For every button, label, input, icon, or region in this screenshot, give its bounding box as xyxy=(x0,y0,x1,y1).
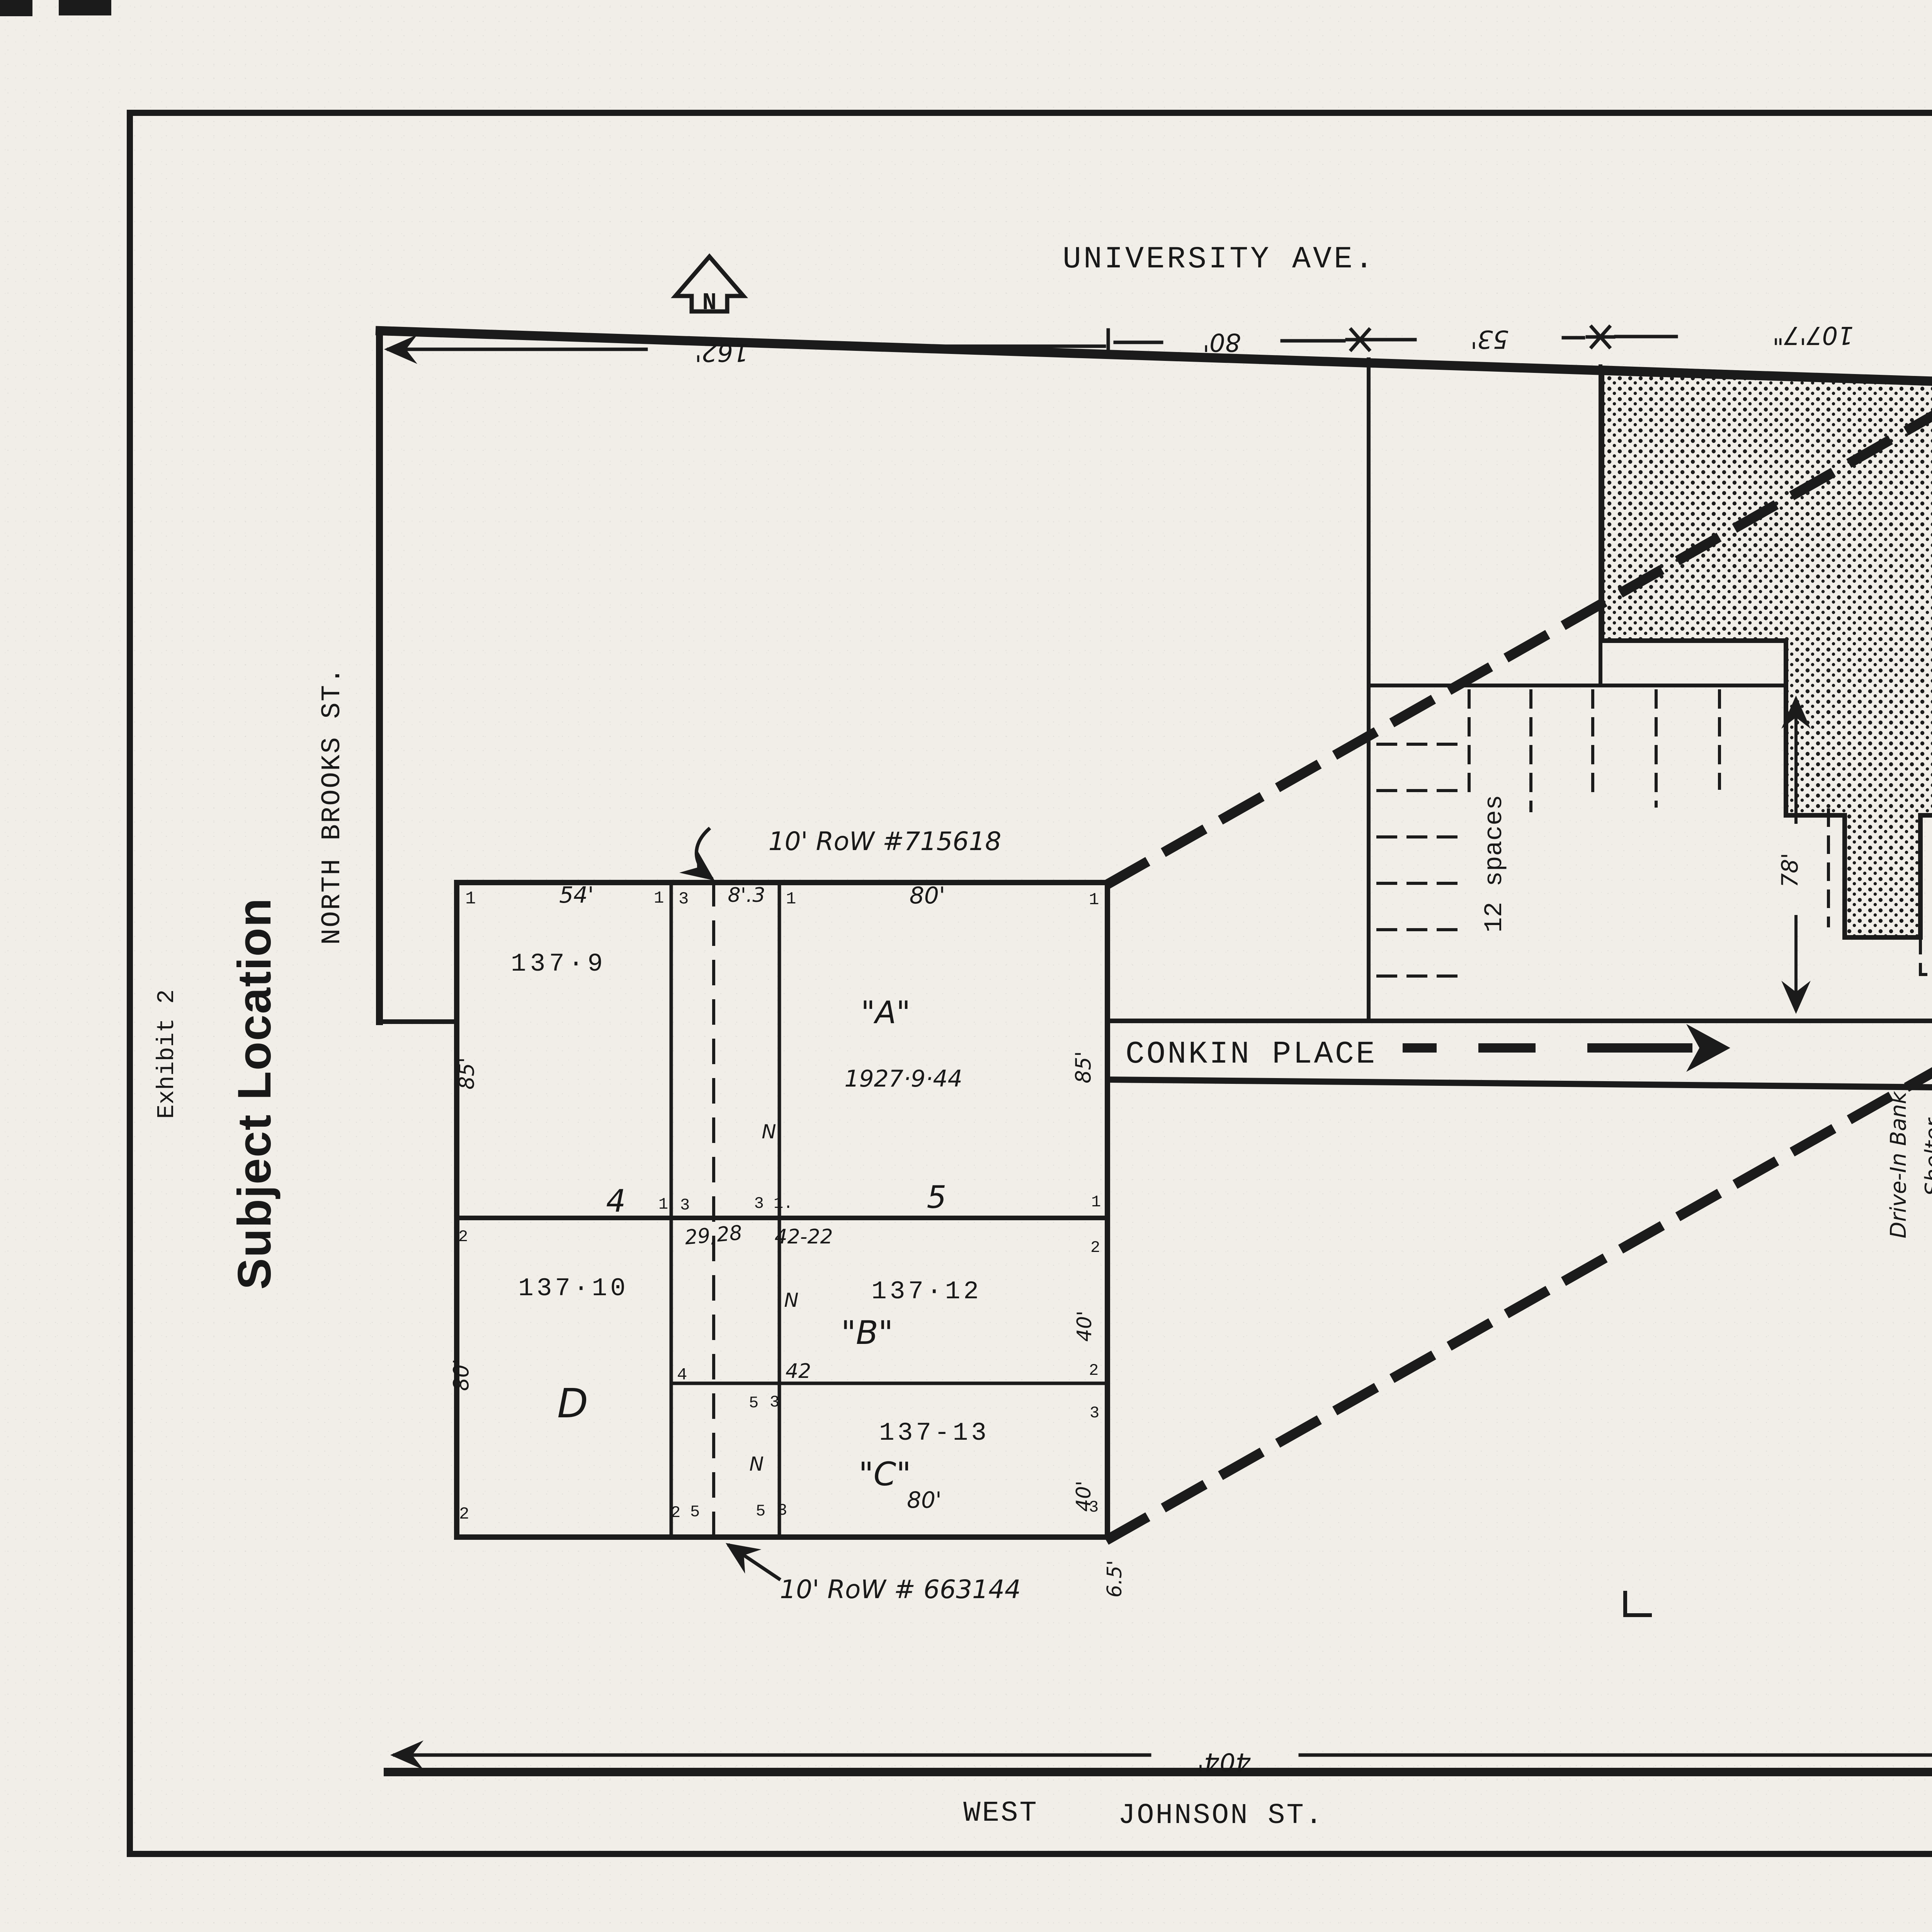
inset-dim-42-22: 42-22 xyxy=(774,1225,833,1248)
street-label-johnson-west: WEST xyxy=(963,1797,1038,1830)
corner-mark: 5 xyxy=(690,1503,700,1521)
parking-stall-lines-vertical xyxy=(1469,691,1719,811)
row-north-mark-1: N xyxy=(762,1121,776,1143)
inset-dim-85-right: 85' xyxy=(1071,1051,1095,1083)
lot-d-name: D xyxy=(557,1380,588,1427)
corner-mark: 3 xyxy=(680,1196,690,1214)
inset-dim-80-a: 80' xyxy=(910,882,946,909)
corner-mark: 1 xyxy=(786,889,796,909)
corner-mark: 1 xyxy=(465,889,476,909)
corner-mark: 2 xyxy=(1090,1238,1100,1257)
row-north-mark-2: N xyxy=(784,1289,798,1311)
block-4-number: 4 xyxy=(606,1183,626,1219)
inset-dim-29-28: 29,28 xyxy=(684,1221,743,1250)
inset-dim-40-b: 40' xyxy=(1073,1311,1096,1342)
inset-dim-54: 54' xyxy=(559,882,594,908)
north-arrow: N xyxy=(675,257,743,316)
row-note-upper: 10' RoW #715618 xyxy=(769,827,1002,856)
row-note-lower: 10' RoW # 663144 xyxy=(780,1575,1021,1604)
inset-dim-80-c: 80' xyxy=(907,1487,942,1513)
site-plan-drawing: Exhibit 2 Subject Location W S N UNIVERS… xyxy=(0,0,1932,1932)
corner-mark: 3 xyxy=(770,1393,779,1412)
lot-b-name: "B" xyxy=(841,1314,893,1352)
corner-mark: 2 xyxy=(671,1503,680,1522)
street-label-johnson: JOHNSON ST. xyxy=(1118,1799,1324,1832)
corner-mark: 5 xyxy=(756,1502,765,1520)
leader-dashed-lower xyxy=(1111,1024,1932,1538)
dim-univ-162: 162' xyxy=(695,338,749,366)
street-label-conkin: CONKIN PLACE xyxy=(1126,1036,1377,1072)
corner-mark: 5 xyxy=(749,1394,759,1412)
corner-mark: 1 xyxy=(1089,890,1099,910)
lot-c-name: "C" xyxy=(859,1455,911,1493)
corner-mark: 2 xyxy=(1089,1361,1099,1380)
inset-dim-80-d: 80' xyxy=(449,1359,473,1391)
lot-number-137-9: 137·9 xyxy=(511,949,607,978)
corner-mark: 2 xyxy=(458,1228,468,1246)
corner-mark: 2 xyxy=(459,1505,469,1524)
scan-marks-top xyxy=(0,5,1932,10)
scanned-page: { "page": { "exhibit": "Exhibit 2", "tit… xyxy=(0,0,1932,1932)
exhibit-label: Exhibit 2 xyxy=(153,990,180,1119)
dim-univ-80: 80' xyxy=(1202,328,1241,356)
street-label-university: UNIVERSITY AVE. xyxy=(1063,242,1376,277)
conkin-arrowhead xyxy=(1686,1024,1730,1072)
corner-mark: 1 xyxy=(658,1195,668,1214)
building-footprint xyxy=(1602,368,1932,937)
lot-number-137-12: 137·12 xyxy=(871,1277,982,1306)
corner-mark: 3 xyxy=(1089,1498,1099,1517)
lot-a-area: 1927·9·44 xyxy=(844,1065,962,1092)
dim-tick-star-2 xyxy=(1587,327,1614,347)
lot-number-137-13: 137-13 xyxy=(879,1418,990,1447)
dim-78-label: 78' xyxy=(1777,853,1803,888)
inset-dim-6-5: 6.5' xyxy=(1103,1560,1126,1598)
row-note-upper-leader xyxy=(696,829,711,878)
corner-mark: 3 xyxy=(679,889,689,909)
dim-univ-53: 53' xyxy=(1470,325,1509,353)
corner-mark: 3 xyxy=(1090,1404,1099,1422)
north-arrow-label: N xyxy=(702,289,716,316)
stray-mark xyxy=(1625,1593,1650,1615)
dim-tick-star-1 xyxy=(1347,330,1373,350)
inset-dim-42: 42 xyxy=(786,1360,811,1383)
parking-spaces-label: 12 spaces xyxy=(1480,795,1509,932)
row-note-lower-leader xyxy=(730,1546,779,1579)
corner-mark: 3 xyxy=(777,1501,787,1520)
inset-dim-85-left: 85' xyxy=(454,1057,479,1090)
lot-number-137-10: 137·10 xyxy=(518,1274,629,1303)
corner-mark: 4 xyxy=(677,1366,687,1385)
corner-mark: 1 xyxy=(654,889,664,908)
conkin-south-line xyxy=(1109,1080,1932,1088)
lot-a-name: "A" xyxy=(861,995,910,1031)
bank-shelter-label-2: Shelter xyxy=(1921,1117,1932,1196)
row-north-mark-3: N xyxy=(749,1453,764,1475)
block-5-number: 5 xyxy=(927,1179,947,1215)
street-label-brooks: NORTH BROOKS ST. xyxy=(317,667,348,945)
inset-lot-detail: 1 54' 1 3 8'.3 1 80' 1 137·9 85' "A" 192… xyxy=(449,882,1126,1598)
corner-mark-31: 3 1. xyxy=(754,1194,793,1213)
inset-dim-8-3: 8'.3 xyxy=(728,884,765,907)
dim-univ-107-7: 107'7" xyxy=(1772,321,1854,349)
page-title: Subject Location xyxy=(228,898,281,1290)
corner-mark: 1 xyxy=(1091,1193,1101,1211)
dim-404-label: 404' xyxy=(1197,1747,1251,1776)
bank-shelter-label-1: Drive-In Bank xyxy=(1886,1090,1911,1238)
parking-stall-lines-horizontal xyxy=(1378,744,1466,976)
